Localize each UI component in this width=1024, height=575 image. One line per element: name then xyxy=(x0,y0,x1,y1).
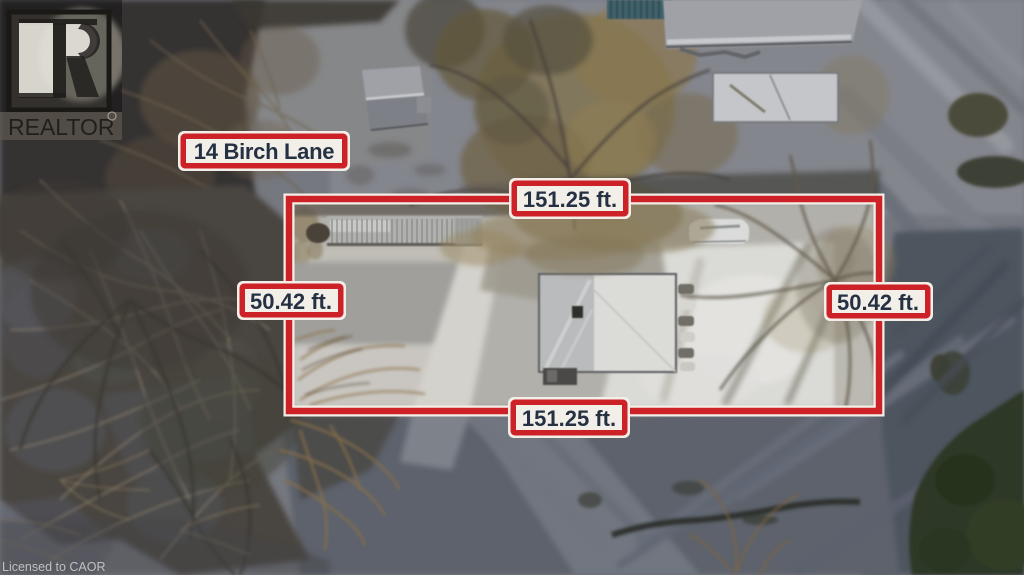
svg-text:151.25 ft.: 151.25 ft. xyxy=(523,187,617,212)
svg-text:151.25 ft.: 151.25 ft. xyxy=(522,406,616,431)
svg-text:50.42 ft.: 50.42 ft. xyxy=(837,290,919,315)
svg-text:Licensed to CAOR: Licensed to CAOR xyxy=(2,560,106,574)
svg-text:REALTOR: REALTOR xyxy=(8,114,115,140)
svg-text:14 Birch Lane: 14 Birch Lane xyxy=(194,139,334,164)
svg-text:50.42 ft.: 50.42 ft. xyxy=(250,289,332,314)
